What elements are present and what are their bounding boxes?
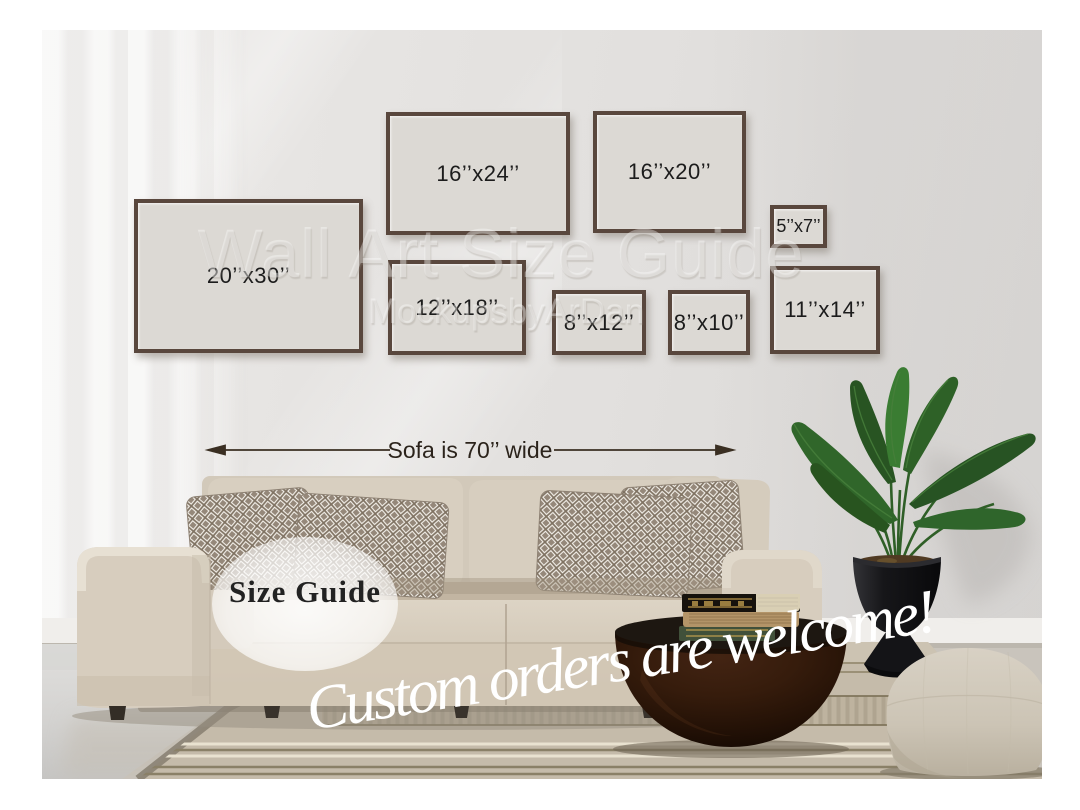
svg-text:Size Guide: Size Guide <box>229 574 381 609</box>
svg-text:Sofa is 70’’ wide: Sofa is 70’’ wide <box>388 437 553 463</box>
